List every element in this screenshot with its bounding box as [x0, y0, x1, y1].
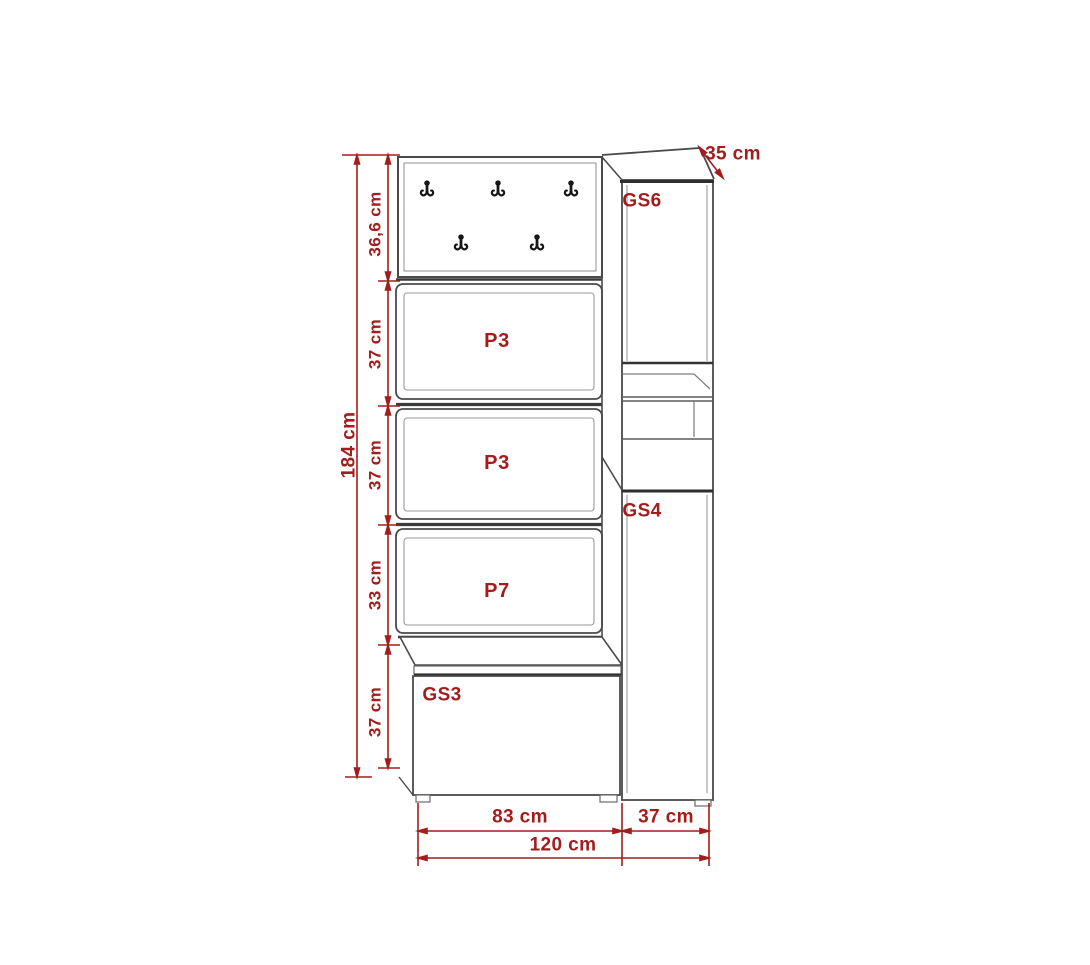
panel-label-p7: P7	[484, 581, 510, 601]
segment-dimension-hook-panel: 36,6 cm	[367, 191, 384, 256]
width-right-dimension-label: 37 cm	[638, 808, 694, 827]
diagram-canvas: 35 cm GS6 36,6 cm P3 37 cm 184 cm P3 37 …	[0, 0, 1090, 965]
panel-label-p3-top: P3	[484, 331, 510, 351]
bench-foot-left	[416, 795, 430, 802]
width-total-dimension-label: 120 cm	[530, 836, 597, 855]
part-label-gs4: GS4	[622, 502, 661, 521]
bench-foot-right	[600, 795, 617, 802]
segment-dimension-shelf-1: 37 cm	[367, 319, 384, 369]
segment-dimension-shelf-3: 33 cm	[367, 560, 384, 610]
part-label-gs3: GS3	[422, 686, 461, 705]
depth-dimension-label: 35 cm	[705, 145, 761, 164]
dimension-height-segments	[386, 155, 391, 768]
cabinet-top-face	[602, 148, 714, 179]
dimension-width-total	[418, 856, 709, 861]
segment-dimension-shelf-2: 37 cm	[367, 440, 384, 490]
part-label-gs6: GS6	[622, 192, 661, 211]
width-left-dimension-label: 83 cm	[492, 808, 548, 827]
segment-dimension-bench: 37 cm	[367, 687, 384, 737]
bench-seat	[400, 637, 622, 675]
dimension-width-split	[418, 829, 709, 834]
side-panel-diagonal	[602, 457, 622, 490]
hook-panel	[398, 157, 602, 277]
panel-label-p3-middle: P3	[484, 453, 510, 473]
total-height-dimension-label: 184 cm	[340, 412, 359, 479]
